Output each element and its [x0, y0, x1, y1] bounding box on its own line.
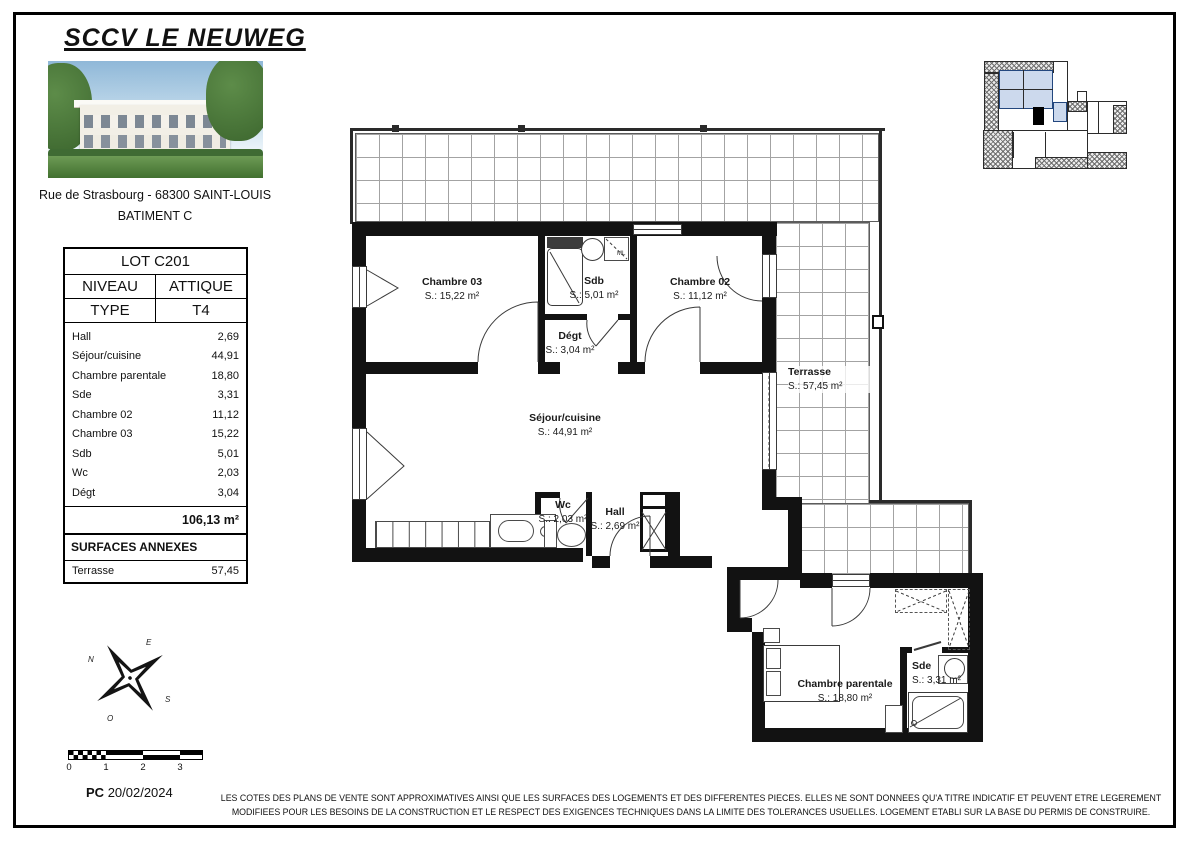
wall	[900, 647, 912, 653]
railing	[969, 500, 972, 578]
toilet-bowl	[557, 523, 586, 547]
disclaimer-line: MODIFIEES POUR LES BESOINS DE LA CONSTRU…	[212, 806, 1170, 820]
railing	[869, 500, 972, 503]
table-row: Terrasse57,45	[65, 560, 246, 582]
room-label-terrasse: TerrasseS.: 57,45 m²	[788, 366, 872, 393]
washbasin	[581, 238, 604, 261]
compass-west-label: O	[107, 714, 113, 723]
wardrobe	[895, 589, 947, 613]
railing-post	[518, 125, 525, 132]
building-label: BATIMENT C	[25, 209, 285, 223]
room-label-chambre03: Chambre 03S.: 15,22 m²	[382, 276, 522, 303]
table-row: Chambre 0315,22	[65, 425, 246, 445]
room-label-chambre02: Chambre 02S.: 11,12 m²	[630, 276, 770, 303]
compass-south-label: S	[165, 695, 170, 704]
lawn	[48, 156, 263, 178]
permit-date: PC 20/02/2024	[86, 785, 173, 800]
building-windows-row	[84, 135, 226, 148]
building-windows-row	[84, 115, 226, 128]
total-area: 106,13 m²	[65, 506, 246, 533]
type-value: T4	[156, 302, 246, 319]
compass-east-label: E	[146, 638, 151, 647]
wall	[762, 497, 802, 510]
table-row: Chambre 0211,12	[65, 405, 246, 425]
annexes-title: SURFACES ANNEXES	[65, 533, 246, 560]
wall	[700, 362, 762, 374]
tree-right	[206, 61, 263, 141]
scale-tick: 2	[138, 762, 148, 773]
wardrobe	[948, 589, 970, 650]
disclaimer: LES COTES DES PLANS DE VENTE SONT APPROX…	[212, 792, 1170, 819]
railing	[350, 128, 885, 131]
disclaimer-line: LES COTES DES PLANS DE VENTE SONT APPROX…	[212, 792, 1170, 806]
wall	[727, 618, 752, 632]
compass-north-label: N	[88, 655, 94, 664]
permit-date-value: 20/02/2024	[108, 785, 173, 800]
wall	[968, 573, 983, 742]
wall	[545, 314, 587, 320]
terrace-bay-door	[762, 372, 777, 470]
lot-number: LOT C201	[65, 249, 246, 275]
wall	[366, 362, 478, 374]
room-label-sdb: SdbS.: 5,01 m²	[558, 275, 630, 302]
kitchen-counter	[375, 521, 490, 548]
window	[352, 428, 367, 500]
washing-machine	[604, 237, 629, 261]
room-label-sejour: Séjour/cuisineS.: 44,91 m²	[495, 412, 635, 439]
table-row: Hall2,69	[65, 327, 246, 347]
room-areas-list: Hall2,69 Séjour/cuisine44,91 Chambre par…	[65, 323, 246, 506]
scale-tick: 0	[64, 762, 74, 773]
terrace-tiles-lower	[800, 503, 969, 575]
washing-machine-label: ML	[617, 251, 625, 257]
wall	[352, 222, 777, 236]
railing-post	[392, 125, 399, 132]
table-row: Sde3,31	[65, 386, 246, 406]
room-label-hall: HallS.: 2,69 m²	[587, 506, 643, 533]
railing-marker	[872, 315, 884, 329]
shaft-divider	[640, 506, 668, 509]
pillow	[766, 648, 781, 669]
project-address: Rue de Strasbourg - 68300 SAINT-LOUIS	[25, 188, 285, 202]
page-title: SCCV LE NEUWEG	[64, 24, 306, 53]
room-label-sde: SdeS.: 3,31 m²	[912, 660, 972, 687]
wall	[800, 573, 832, 588]
terrace-door	[832, 574, 870, 587]
table-row: Wc2,03	[65, 464, 246, 484]
bathtub-inner	[912, 696, 964, 729]
wall	[592, 556, 610, 568]
nightstand	[763, 628, 780, 643]
table-row: Sdb5,01	[65, 444, 246, 464]
wall	[674, 556, 712, 568]
scale-tick: 3	[175, 762, 185, 773]
wall	[618, 314, 630, 320]
niveau-value: ATTIQUE	[156, 278, 246, 295]
table-row: Chambre parentale18,80	[65, 366, 246, 386]
compass-rose: N E S O	[85, 633, 185, 728]
shower-shelf	[547, 237, 583, 248]
technical-shaft	[640, 492, 668, 552]
table-row: Dégt3,04	[65, 483, 246, 503]
wall	[870, 573, 970, 588]
scale-tick: 1	[101, 762, 111, 773]
railing-post	[700, 125, 707, 132]
window	[352, 266, 367, 308]
wall	[538, 362, 560, 374]
type-label: TYPE	[65, 299, 156, 322]
wall	[727, 567, 800, 580]
wall	[352, 548, 583, 562]
scale-bar: 0 1 2 3	[65, 746, 205, 774]
plan-sheet: SCCV LE NEUWEG Rue de Strasbourg - 68300…	[0, 0, 1190, 841]
railing	[350, 128, 353, 224]
wall	[535, 492, 560, 498]
lot-summary-table: LOT C201 NIVEAU ATTIQUE TYPE T4 Hall2,69…	[63, 247, 248, 584]
permit-label: PC	[86, 785, 104, 800]
window	[633, 224, 682, 235]
cupboard	[885, 705, 903, 733]
building-photo	[48, 61, 263, 178]
room-label-degt: DégtS.: 3,04 m²	[530, 330, 610, 357]
room-label-parentale: Chambre parentaleS.: 18,80 m²	[775, 678, 915, 705]
key-plan	[983, 53, 1133, 173]
key-plan-stair	[1033, 107, 1044, 125]
niveau-label: NIVEAU	[65, 275, 156, 298]
compass-star	[85, 633, 175, 723]
wall	[618, 362, 645, 374]
table-row: Séjour/cuisine44,91	[65, 347, 246, 367]
terrace-tiles-top	[355, 133, 879, 222]
